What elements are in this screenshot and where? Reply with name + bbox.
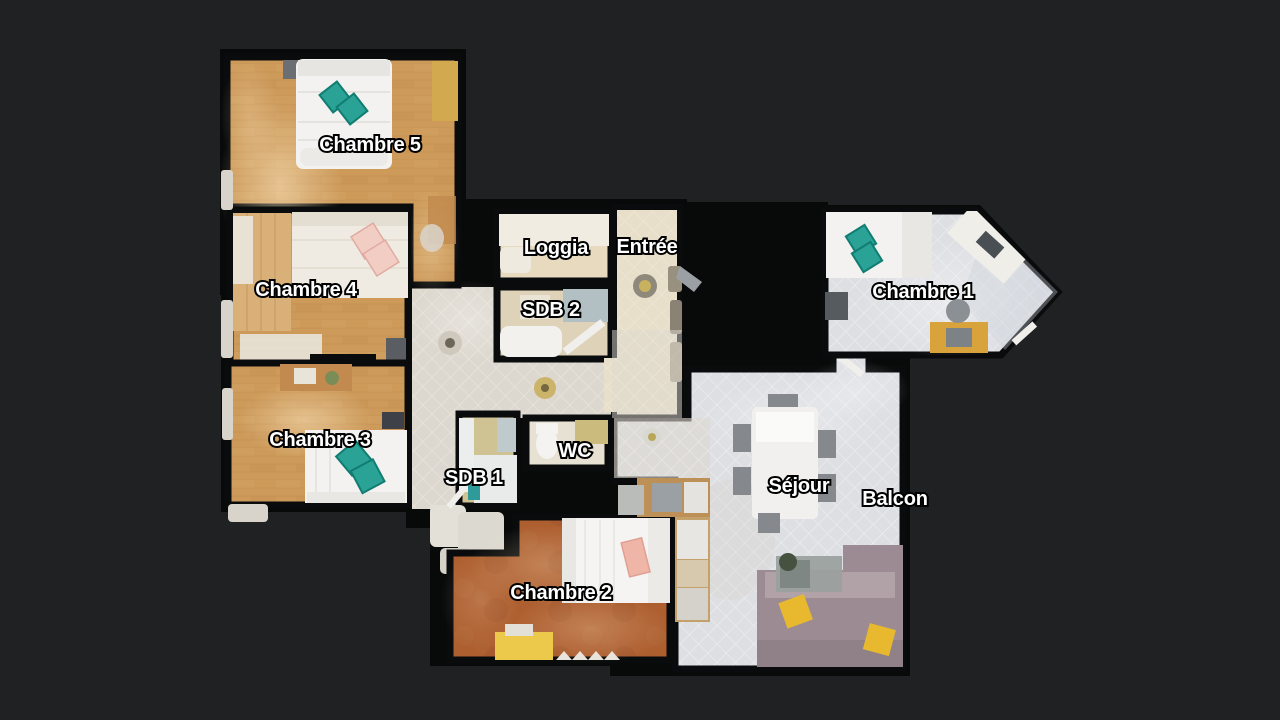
svg-text:WC: WC: [559, 440, 592, 462]
svg-text:SDB 2: SDB 2: [522, 299, 580, 321]
svg-text:Chambre 1: Chambre 1: [872, 281, 974, 303]
svg-text:SDB 1: SDB 1: [445, 467, 503, 489]
svg-text:Chambre 4: Chambre 4: [255, 279, 358, 301]
svg-text:Chambre 5: Chambre 5: [319, 134, 421, 156]
svg-text:Séjour: Séjour: [768, 475, 829, 497]
svg-text:Chambre 2: Chambre 2: [510, 582, 612, 604]
svg-text:Chambre 3: Chambre 3: [269, 429, 371, 451]
svg-text:Loggia: Loggia: [524, 237, 589, 259]
svg-text:Balcon: Balcon: [862, 488, 927, 510]
svg-text:Entrée: Entrée: [616, 236, 677, 258]
